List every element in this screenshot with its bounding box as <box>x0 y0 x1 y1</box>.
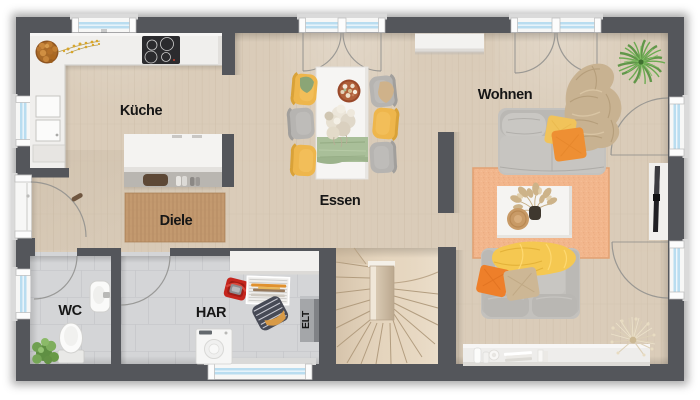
svg-text:Küche: Küche <box>120 103 163 119</box>
svg-text:Essen: Essen <box>320 193 361 209</box>
svg-text:Wohnen: Wohnen <box>478 87 533 103</box>
svg-text:Diele: Diele <box>160 213 193 229</box>
svg-text:ELT: ELT <box>300 310 312 329</box>
svg-text:HAR: HAR <box>196 305 227 321</box>
svg-text:WC: WC <box>58 303 82 319</box>
